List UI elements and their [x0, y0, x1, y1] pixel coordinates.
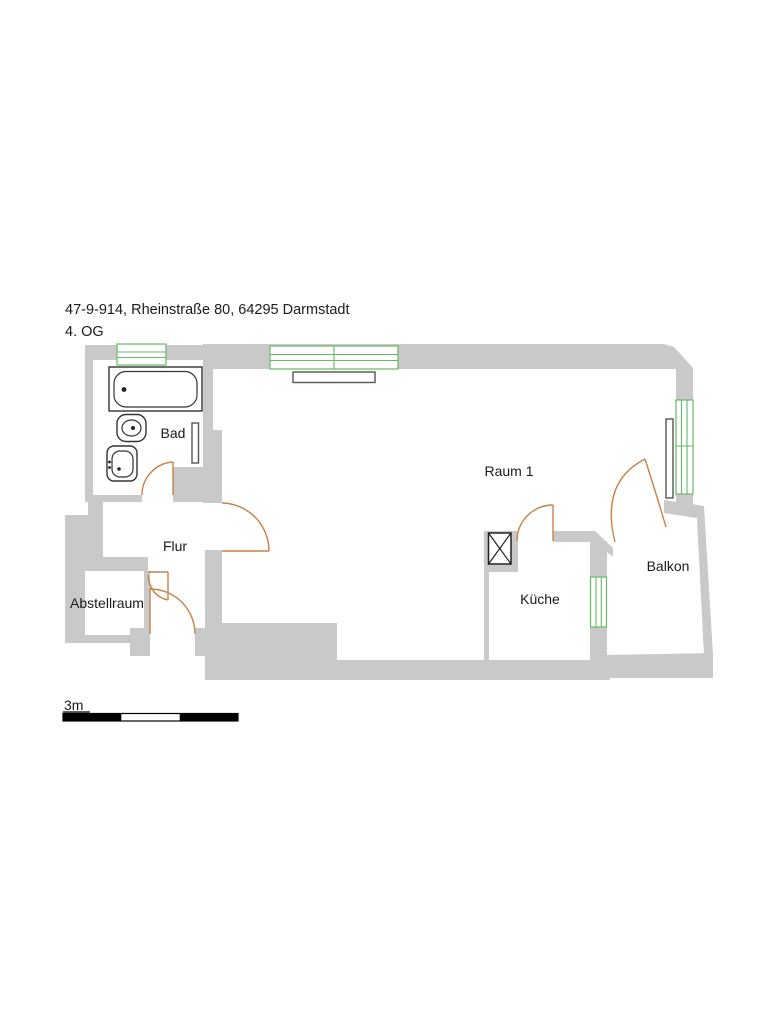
floor-plan-page: 47-9-914, Rheinstraße 80, 64295 Darmstad…	[0, 0, 780, 1024]
sink-drain	[117, 467, 121, 471]
room-label-flur: Flur	[163, 538, 187, 554]
sink	[107, 446, 137, 481]
window-raum1-double	[270, 346, 398, 369]
radiator-raum1	[293, 372, 375, 383]
wall-bad-raum1-upper	[203, 344, 213, 430]
toilet	[117, 415, 146, 442]
bath-fixtures	[107, 367, 202, 481]
bathtub-drain	[122, 387, 127, 392]
plan-title-address: 47-9-914, Rheinstraße 80, 64295 Darmstad…	[65, 302, 350, 318]
scale-label: 3m	[64, 697, 83, 713]
room-label-kueche: Küche	[520, 591, 560, 607]
wall-right-upper	[676, 369, 693, 402]
window-bad	[117, 344, 166, 365]
door-bad	[142, 462, 173, 495]
wall-balcony-bottom	[605, 653, 713, 678]
shaft-box	[489, 533, 512, 564]
wall-bad-raum1-block	[203, 430, 222, 503]
radiators	[192, 372, 673, 498]
wall-entrance-left-block	[130, 628, 150, 656]
wall-bad-corner-block	[173, 467, 203, 502]
wall-abstell-top	[65, 557, 148, 571]
wall-kitchen-top	[553, 531, 595, 542]
room-label-bad: Bad	[161, 425, 186, 441]
wall-entrance-right-stub	[195, 628, 222, 656]
room-label-balkon: Balkon	[647, 558, 690, 574]
door-abstellraum	[148, 572, 168, 600]
radiator-bad	[192, 423, 199, 463]
wall-flur-raum1-lower	[205, 550, 222, 628]
scale-bar: 3m	[63, 697, 238, 721]
wall-bottom-main	[337, 660, 610, 680]
door-raum1	[222, 503, 269, 551]
wall-left-flur	[88, 495, 103, 517]
wall-left-step	[65, 515, 103, 557]
radiator-raum1-right	[666, 419, 673, 498]
wall-bottom-slab	[205, 623, 337, 680]
floor-plan-drawing: 47-9-914, Rheinstraße 80, 64295 Darmstad…	[0, 0, 780, 1024]
door-balkon	[611, 459, 666, 542]
window-raum1-right	[676, 400, 693, 494]
room-label-raum1: Raum 1	[484, 463, 533, 479]
door-kueche	[517, 505, 553, 541]
wall-balcony-right	[697, 506, 713, 655]
room-label-abstellraum: Abstellraum	[70, 595, 144, 611]
wall-left-bad	[85, 345, 93, 502]
plan-title-floor: 4. OG	[65, 324, 104, 340]
window-kueche-balkon	[591, 577, 607, 627]
bathtub	[109, 367, 202, 411]
